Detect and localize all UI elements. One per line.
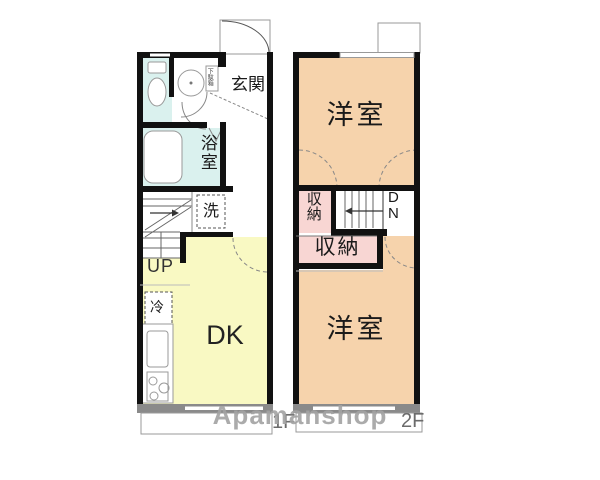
bathtub xyxy=(144,131,182,183)
closet-large-label: 収納 xyxy=(296,237,379,259)
stairs-down-n-label: N xyxy=(388,206,399,222)
window-slit-toilet xyxy=(150,54,170,57)
porch-roof-box xyxy=(378,23,420,53)
laundry-label: 洗 xyxy=(203,204,219,221)
dk-label: DK xyxy=(160,321,290,349)
washbasin-drain xyxy=(190,82,193,85)
bathroom-label: 浴室 xyxy=(198,134,216,172)
closet-small-label: 収納 xyxy=(305,191,321,221)
fridge-label: 冷 xyxy=(150,300,164,315)
watermark: Apamanshop xyxy=(170,402,430,429)
genkan-step-line xyxy=(210,93,268,119)
stairs-down-d-label: D xyxy=(388,190,399,206)
floorplan-image: 玄関 下駄箱 浴室 洗 UP 冷 DK 洋室 収納 D N 収納 洋室 1F 2… xyxy=(0,0,600,480)
window-top-2f xyxy=(340,53,414,58)
toilet-bowl-icon xyxy=(148,78,166,106)
bedroom-top-label: 洋室 xyxy=(296,101,417,129)
plan-2f xyxy=(293,23,422,432)
genkan-label: 玄関 xyxy=(231,76,265,94)
dn-arrow-icon xyxy=(345,208,352,215)
stairs-up-label: UP xyxy=(147,257,174,276)
toilet-tank xyxy=(148,62,166,73)
bedroom-bottom-label: 洋室 xyxy=(296,315,417,343)
doorway-strip xyxy=(383,236,414,270)
shoe-cabinet-label: 下駄箱 xyxy=(206,68,212,86)
